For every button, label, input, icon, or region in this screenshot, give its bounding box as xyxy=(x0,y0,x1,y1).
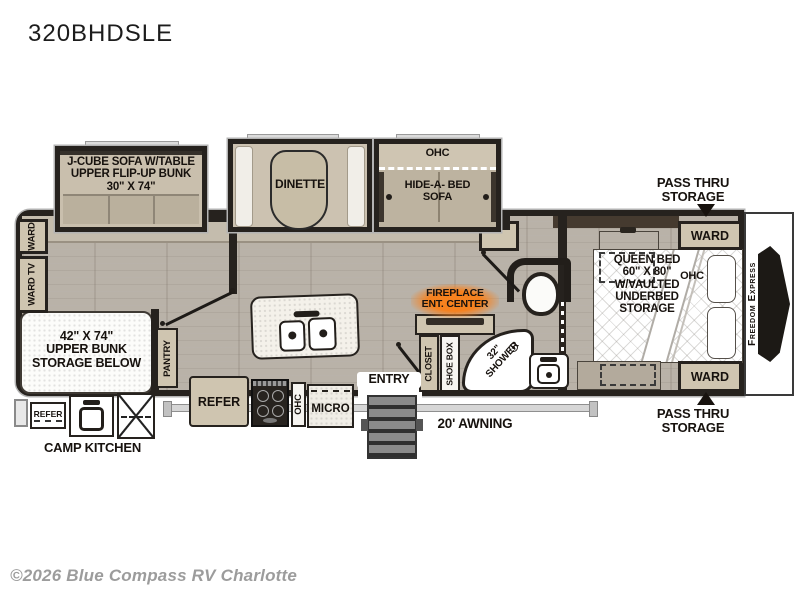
microwave-label: MICRO xyxy=(311,403,349,415)
ward-left-label: WARD xyxy=(27,222,38,250)
ward-tv-label: WARD TV xyxy=(27,263,38,305)
pass-thru-bottom-label: PASS THRU STORAGE xyxy=(635,407,751,435)
bed-foot-dashed xyxy=(600,364,656,386)
sofa-seam xyxy=(108,196,110,224)
ward-bottom-cabinet: WARD xyxy=(678,361,742,392)
pass-thru-top-label: PASS THRU STORAGE xyxy=(635,176,751,204)
camp-stove-dashed xyxy=(121,416,151,418)
stove-oval xyxy=(263,418,277,423)
ward-top-cabinet: WARD xyxy=(678,221,742,250)
microwave: MICRO xyxy=(307,384,354,428)
pantry-cabinet: PANTRY xyxy=(156,328,178,388)
pass-thru-back-wall xyxy=(553,216,679,228)
sofa-slideout-label: J-CUBE SOFA W/TABLE UPPER FLIP-UP BUNK 3… xyxy=(57,156,205,193)
upper-bunk-label: 42" X 74" UPPER BUNK STORAGE BELOW xyxy=(22,330,151,370)
sofa-back-bar xyxy=(60,151,202,155)
floorplan-canvas: 320BHDSLE Freedom Express J-CUBE SOFA W/… xyxy=(0,0,800,600)
entry-label: ENTRY xyxy=(357,373,421,386)
range-stove xyxy=(251,379,289,427)
sink-faucet xyxy=(540,357,557,362)
island-faucet xyxy=(293,310,319,317)
island-sink-left xyxy=(279,320,306,352)
ward-top-label: WARD xyxy=(691,229,729,243)
kitchen-ohc-cabinet: OHC xyxy=(291,382,306,427)
awning-end-cap xyxy=(589,401,598,417)
bed-ohc-label: OHC xyxy=(672,271,712,283)
door-hinge-dot xyxy=(160,321,165,326)
shoebox-label: SHOE BOX xyxy=(445,342,455,385)
stove-burner xyxy=(272,405,284,417)
kitchen-island xyxy=(250,293,360,360)
pantry-label: PANTRY xyxy=(162,340,173,377)
brand-text: Freedom Express xyxy=(745,245,759,363)
refrigerator-label: REFER xyxy=(198,395,240,409)
bed-pillow xyxy=(707,307,736,359)
ward-bottom-label: WARD xyxy=(691,370,729,384)
door-hinge-dot xyxy=(481,250,486,255)
camp-refer-label: REFER xyxy=(34,409,63,422)
toilet xyxy=(522,272,560,316)
hideabed-ohc-label: OHC xyxy=(378,148,497,160)
door-hinge-dot xyxy=(396,342,401,347)
arrow-down-icon xyxy=(697,204,715,217)
copyright-text: ©2026 Blue Compass RV Charlotte xyxy=(10,566,297,586)
kitchen-ohc-label: OHC xyxy=(293,394,304,415)
door-hinge-dot xyxy=(230,288,235,293)
step-side-tab xyxy=(361,419,368,431)
closet-cabinet: CLOSET xyxy=(419,335,439,392)
awning-end-cap xyxy=(163,401,172,417)
dinette-label: DINETTE xyxy=(230,178,370,191)
island-drain-dot xyxy=(319,329,327,337)
camp-kitchen-sink xyxy=(69,395,114,437)
stove-burner xyxy=(257,390,269,402)
model-title: 320BHDSLE xyxy=(28,20,173,48)
ward-cabinet-left: WARD xyxy=(17,219,48,254)
bed-foot-rail xyxy=(577,361,661,390)
sofa-seam xyxy=(153,196,155,224)
stove-burner xyxy=(272,390,284,402)
shoebox-cabinet: SHOE BOX xyxy=(440,335,460,392)
stove-vent xyxy=(253,381,287,386)
queen-bed-label: QUEEN BED 60" X 80" W/VAULTED UNDERBED S… xyxy=(595,254,699,315)
brand-text-label: Freedom Express xyxy=(747,262,758,346)
camp-sink-basin xyxy=(79,407,104,431)
sink-drain-dot xyxy=(546,372,552,378)
camp-kitchen-label: CAMP KITCHEN xyxy=(20,441,165,455)
ent-center-tv xyxy=(426,318,484,325)
ward-tv-cabinet: WARD TV xyxy=(17,256,48,313)
refrigerator: REFER xyxy=(189,376,249,427)
bathroom-sink xyxy=(529,353,569,389)
hideabed-label: HIDE-A- BED SOFA xyxy=(378,180,497,204)
bed-head-handle xyxy=(620,227,636,233)
microwave-dashed-line xyxy=(311,390,350,392)
pocket-door xyxy=(559,302,566,354)
sofa-seat xyxy=(63,194,199,224)
island-drain-dot xyxy=(288,331,296,339)
bumper-stub xyxy=(14,399,28,427)
stove-burner xyxy=(257,405,269,417)
arrow-up-icon xyxy=(697,392,715,405)
closet-label: CLOSET xyxy=(424,346,434,381)
awning-label: 20' AWNING xyxy=(420,417,530,431)
camp-kitchen-refer: REFER xyxy=(30,402,66,429)
fireplace-label: FIREPLACE ENT. CENTER xyxy=(407,288,503,310)
island-sink-right xyxy=(308,317,337,351)
camp-sink-faucet xyxy=(83,400,100,405)
camp-kitchen-stove xyxy=(117,393,155,439)
sink-basin xyxy=(537,364,560,384)
entry-steps xyxy=(367,395,417,459)
